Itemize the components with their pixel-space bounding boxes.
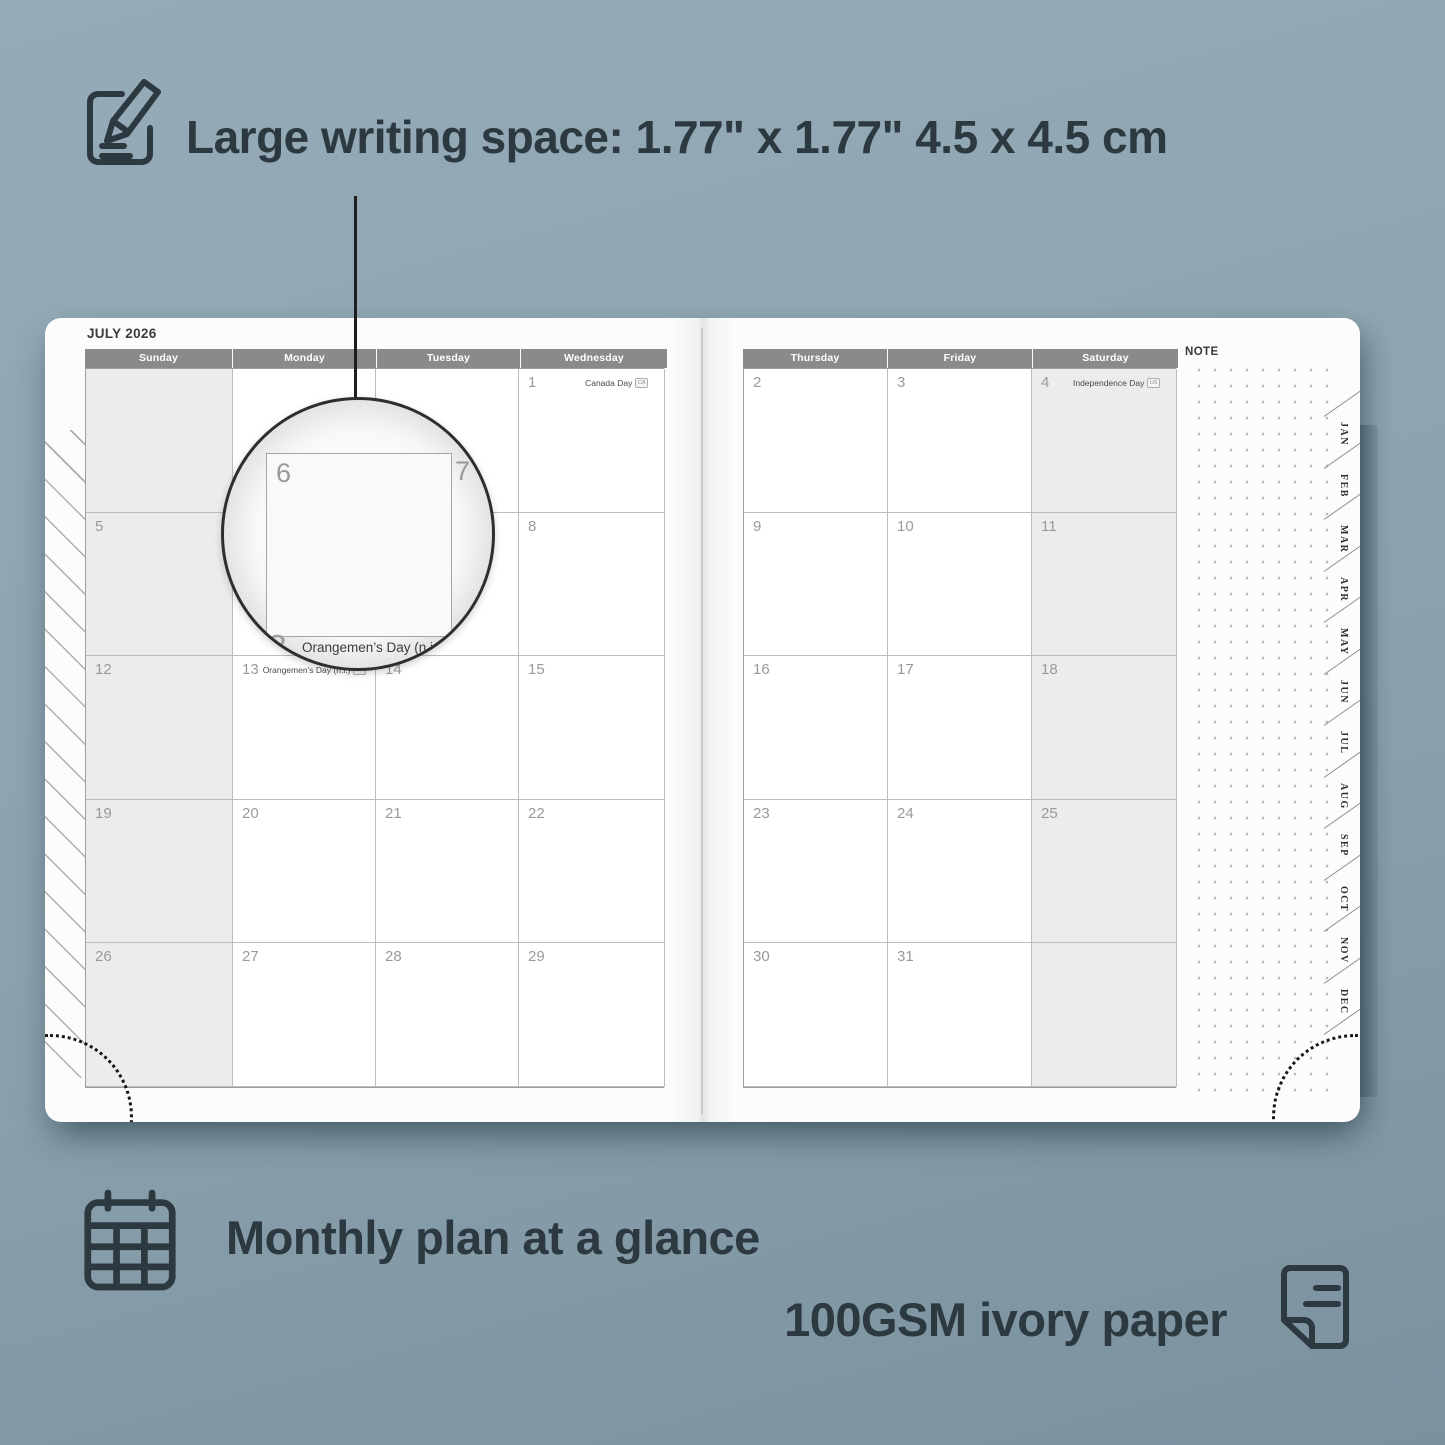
weekday-header: Saturday [1033,349,1178,368]
day-number: 29 [528,948,545,965]
calendar-right-page: ThursdayFridaySaturday 234Independence D… [743,349,1176,1088]
day-number: 4 [1041,374,1049,391]
cell-content: 15 [519,656,664,678]
calendar-cell: 13Orangemen’s Day (n.i.)UK [233,656,376,800]
day-number: 1 [528,374,536,391]
holiday-label: Independence Day [1073,378,1144,388]
day-number: 8 [528,518,536,535]
calendar-cell: 11 [1032,513,1177,657]
calendar-cell: 18 [1032,656,1177,800]
cell-content: 23 [744,800,887,822]
month-title: JULY 2026 [87,326,157,341]
day-number: 28 [385,948,402,965]
magnified-day-number: 6 [276,458,291,489]
calendar-cell: 2 [744,369,888,513]
day-number: 31 [897,948,914,965]
month-tab-feb: FEB [1328,470,1360,517]
cell-content [86,369,232,374]
calendar-cell: 21 [376,800,519,944]
day-number: 25 [1041,805,1058,822]
cell-content: 28 [376,943,518,965]
calendar-cell: 10 [888,513,1032,657]
calendar-cell: 27 [233,943,376,1087]
month-tab-label: JUN [1338,680,1349,704]
magnified-day-number: 13 [250,628,287,666]
magnified-day-number: 7 [455,456,470,487]
month-tab-label: NOV [1338,937,1349,964]
cell-content: 27 [233,943,375,965]
day-number: 20 [242,805,259,822]
calendar-cell: 9 [744,513,888,657]
month-tab-dec: DEC [1328,985,1360,1032]
cell-content: 12 [86,656,232,678]
cell-content: 17 [888,656,1031,678]
calendar-cell [86,369,233,513]
day-number: 2 [753,374,761,391]
day-number: 24 [897,805,914,822]
month-tab-label: OCT [1338,886,1349,912]
month-tab-jul: JUL [1328,727,1360,774]
calendar-cell: 19 [86,800,233,944]
cell-content: 4Independence DayUS [1032,369,1176,391]
calendar-cell: 25 [1032,800,1177,944]
calendar-cell: 24 [888,800,1032,944]
day-number: 9 [753,518,761,535]
month-tab-mar: MAR [1328,521,1360,568]
day-number: 21 [385,805,402,822]
calendar-cell: 15 [519,656,665,800]
cell-content: 11 [1032,513,1176,535]
holiday-entry: Canada DayCA [585,378,656,388]
day-number: 10 [897,518,914,535]
cell-content: 16 [744,656,887,678]
cell-content: 21 [376,800,518,822]
day-number: 18 [1041,661,1058,678]
day-number: 12 [95,661,112,678]
calendar-cell: 31 [888,943,1032,1087]
cell-content: 1Canada DayCA [519,369,664,391]
calendar-cell: 1Canada DayCA [519,369,665,513]
day-number: 11 [1041,518,1057,535]
cell-content [1032,943,1176,948]
month-tab-label: MAY [1338,628,1349,655]
holiday-label: Orangemen’s Day (n.i.) [302,640,441,655]
calendar-grid-right: 234Independence DayUS9101116171823242530… [743,368,1176,1088]
day-number: 22 [528,805,545,822]
calendar-cell: 23 [744,800,888,944]
cell-content: 22 [519,800,664,822]
country-badge: US [1147,378,1160,388]
month-tab-label: AUG [1338,783,1349,810]
calendar-cell: 14 [376,656,519,800]
cell-content: 24 [888,800,1031,822]
day-number: 15 [528,661,545,678]
cell-content: 19 [86,800,232,822]
day-number: 19 [95,805,112,822]
cell-content: 9 [744,513,887,535]
holiday-entry: Independence DayUS [1073,378,1168,388]
note-dot-grid [1191,362,1329,1092]
month-tab-label: FEB [1338,474,1349,498]
cell-content: 18 [1032,656,1176,678]
cell-content: 20 [233,800,375,822]
month-tab-jan: JAN [1328,418,1360,465]
month-tab-jun: JUN [1328,676,1360,723]
planner-spread: JULY 2026 SundayMondayTuesdayWednesday 1… [45,318,1360,1122]
month-tab-nov: NOV [1328,933,1360,980]
calendar-grid-icon [82,1188,178,1292]
weekday-header-row: ThursdayFridaySaturday [743,349,1176,368]
day-number: 16 [753,661,770,678]
note-label: NOTE [1185,344,1225,360]
cell-content: 10 [888,513,1031,535]
country-badge: UK [445,641,463,655]
weekday-header-row: SundayMondayTuesdayWednesday [85,349,664,368]
cell-content: 25 [1032,800,1176,822]
day-number: 23 [753,805,770,822]
month-tab-may: MAY [1328,624,1360,671]
magnifier-circle: 6 7 13 Orangemen’s Day (n.i.) UK [221,397,495,671]
hero-title: Large writing space: 1.77" x 1.77" 4.5 x… [186,110,1168,164]
page-fold-line [701,328,703,1114]
weekday-header: Sunday [85,349,232,368]
day-number: 30 [753,948,770,965]
day-number: 3 [897,374,905,391]
calendar-cell: 17 [888,656,1032,800]
day-number: 26 [95,948,112,965]
product-image: { "colors": { "background": "#8ca3af", "… [0,0,1445,1445]
calendar-cell: 3 [888,369,1032,513]
paper-label: 100GSM ivory paper [784,1292,1227,1347]
calendar-cell: 4Independence DayUS [1032,369,1177,513]
pencil-note-icon [82,76,168,170]
calendar-cell: 12 [86,656,233,800]
paper-sheet-icon [1276,1264,1350,1350]
calendar-cell: 5 [86,513,233,657]
month-tab-label: JUL [1338,731,1349,754]
weekday-header: Wednesday [521,349,667,368]
left-edge-hatch [45,430,85,1078]
cell-content: 8 [519,513,664,535]
country-badge: CA [635,378,648,388]
day-number: 5 [95,518,103,535]
calendar-cell: 8 [519,513,665,657]
calendar-cell [1032,943,1177,1087]
month-tab-sep: SEP [1328,830,1360,877]
month-tab-label: MAR [1338,525,1349,553]
month-tab-apr: APR [1328,573,1360,620]
calendar-cell: 22 [519,800,665,944]
calendar-cell: 20 [233,800,376,944]
month-tab-oct: OCT [1328,882,1360,929]
month-tab-label: APR [1338,577,1349,602]
weekday-header: Friday [888,349,1032,368]
day-number: 17 [897,661,914,678]
month-tab-label: JAN [1338,422,1349,446]
cell-content: 2 [744,369,887,391]
month-tab-aug: AUG [1328,779,1360,826]
monthly-plan-label: Monthly plan at a glance [226,1210,760,1265]
cell-content: 3 [888,369,1031,391]
holiday-label: Canada Day [585,378,632,388]
weekday-header: Thursday [743,349,887,368]
magnified-holiday: Orangemen’s Day (n.i.) UK [302,640,463,655]
calendar-cell: 29 [519,943,665,1087]
tab-separator [1324,391,1360,417]
cell-content: 31 [888,943,1031,965]
cell-content: 26 [86,943,232,965]
weekday-header: Tuesday [377,349,520,368]
cell-content: 29 [519,943,664,965]
month-tab-label: DEC [1338,989,1349,1015]
cell-content: 30 [744,943,887,965]
calendar-cell: 16 [744,656,888,800]
cell-content [376,369,518,374]
month-tab-label: SEP [1338,834,1349,857]
cell-content: 5 [86,513,232,535]
calendar-cell: 30 [744,943,888,1087]
calendar-cell: 28 [376,943,519,1087]
callout-connector-line [354,196,357,399]
writing-space-outline [266,453,452,637]
day-number: 27 [242,948,259,965]
